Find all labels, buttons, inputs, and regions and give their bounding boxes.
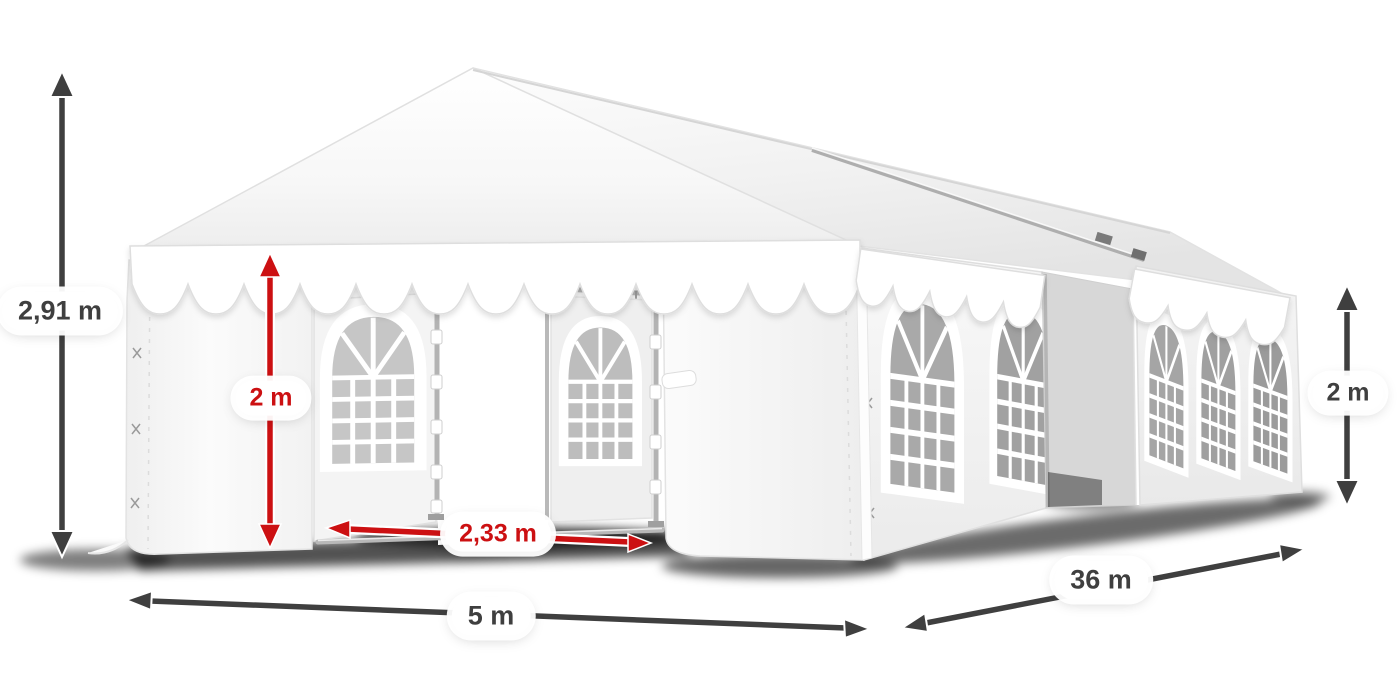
tent-dimension-diagram: 2,91 m 2 m 2,33 m 5 m 36 m 2 m: [0, 0, 1400, 700]
dimension-label-entrance-height: 2 m: [235, 381, 306, 416]
tent-middle-gap: [1042, 272, 1140, 508]
dimension-label-length: 36 m: [1054, 560, 1148, 599]
dimension-label-entrance-width: 2,33 m: [445, 517, 551, 552]
tent-illustration: [0, 0, 1400, 700]
door-panel-right: [545, 288, 661, 524]
door-panel-left: [314, 293, 442, 541]
arched-window: [559, 316, 642, 466]
dimension-label-side-height: 2 m: [1312, 376, 1383, 411]
arched-window: [320, 303, 427, 472]
dimension-label-total-height: 2,91 m: [2, 291, 118, 330]
dimension-label-width: 5 m: [452, 596, 531, 635]
